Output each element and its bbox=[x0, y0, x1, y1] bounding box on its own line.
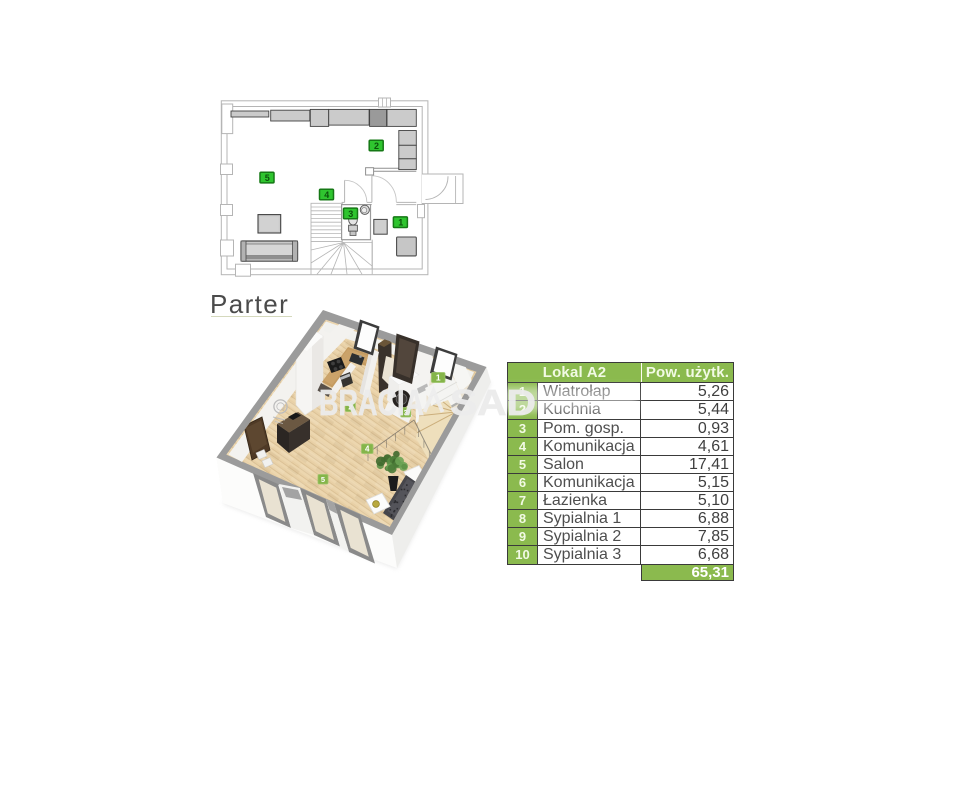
svg-text:5: 5 bbox=[321, 475, 325, 484]
svg-text:3: 3 bbox=[348, 209, 353, 219]
svg-text:4: 4 bbox=[365, 445, 370, 454]
svg-text:4: 4 bbox=[324, 190, 329, 200]
svg-text:2: 2 bbox=[348, 403, 352, 412]
svg-text:1: 1 bbox=[398, 218, 403, 228]
svg-text:1: 1 bbox=[436, 372, 441, 382]
svg-text:3: 3 bbox=[404, 408, 408, 417]
svg-text:2: 2 bbox=[374, 141, 379, 151]
svg-text:5: 5 bbox=[265, 173, 270, 183]
